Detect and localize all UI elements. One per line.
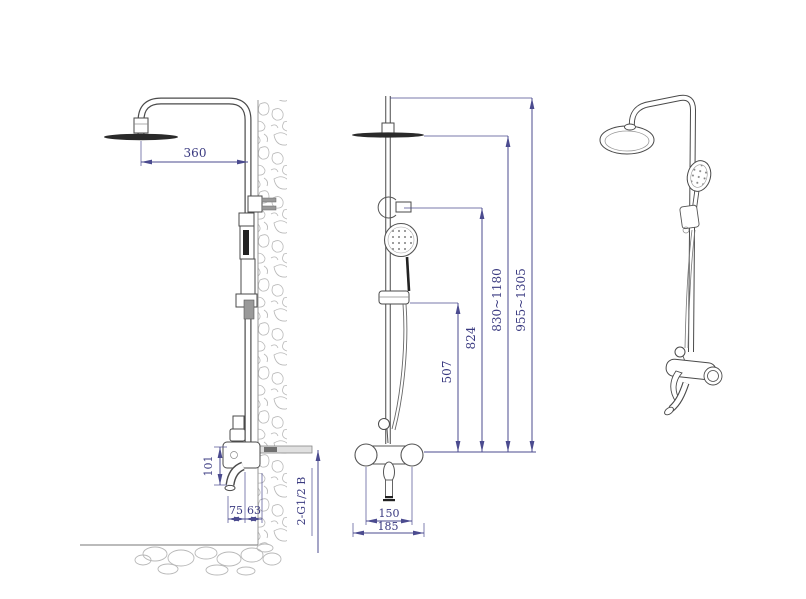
hand-shower-face-side	[243, 230, 249, 255]
tub-spout-front	[386, 480, 393, 497]
dim-label-inlet-spec: 2-G1/2 B	[295, 477, 308, 526]
dim-label-150: 150	[379, 507, 400, 520]
dim-label-507: 507	[440, 361, 454, 384]
diverter-stem	[233, 416, 244, 430]
hand-shower-side	[236, 213, 257, 319]
union-escutcheon-right	[401, 444, 423, 466]
diverter-perspective	[675, 347, 685, 357]
dim-label-75: 75	[229, 504, 243, 517]
dim-label-830-1180: 830~1180	[490, 268, 504, 332]
dimension-heights: 507 824 830~1180 955~1305	[390, 98, 536, 452]
dim-label-824: 824	[464, 326, 478, 349]
supply-inlet-union	[264, 447, 277, 452]
mixer-valve-perspective	[663, 347, 722, 416]
floor-stones	[135, 544, 281, 575]
holder-perspective	[680, 205, 700, 229]
front-view: 507 824 830~1180 955~1305 150 185	[352, 96, 536, 537]
spout-aerator	[383, 499, 395, 501]
dim-label-955-1305: 955~1305	[514, 268, 528, 332]
dim-label-63: 63	[247, 504, 261, 517]
shower-hose	[392, 304, 404, 429]
rain-shower-head-perspective	[600, 124, 654, 154]
dim-label-101: 101	[202, 456, 215, 477]
dim-label-360: 360	[184, 146, 207, 160]
union-escutcheon-left	[355, 444, 377, 466]
spout-outlet	[225, 485, 235, 490]
diverter-knob	[230, 429, 245, 441]
dim-label-185: 185	[378, 520, 399, 533]
diverter-front	[379, 419, 390, 430]
wall-section	[80, 100, 287, 545]
head-flange-front	[382, 123, 394, 133]
shower-hose-edge	[395, 304, 407, 430]
side-view: 360 101 75 63 2-G1/2 B	[80, 100, 318, 575]
rain-shower-head-side	[104, 134, 178, 140]
head-hub	[625, 124, 636, 130]
dimension-arm-reach: 360	[141, 141, 248, 166]
hand-shower-perspective	[680, 158, 714, 348]
hand-shower-handle	[407, 257, 409, 291]
head-connector	[134, 118, 148, 133]
hand-shower-front	[379, 224, 418, 431]
rain-shower-head-front	[352, 132, 424, 137]
lever-handle-front	[384, 462, 395, 482]
perspective-view	[600, 98, 722, 417]
hand-shower-nozzles	[388, 227, 414, 253]
slider-holder-front	[379, 291, 409, 304]
shower-set-technical-drawing: 360 101 75 63 2-G1/2 B	[0, 0, 806, 599]
dimension-inlet-spec: 2-G1/2 B	[295, 450, 318, 553]
technical-drawing-page: 360 101 75 63 2-G1/2 B	[0, 0, 806, 599]
slide-bracket-front	[378, 197, 411, 218]
